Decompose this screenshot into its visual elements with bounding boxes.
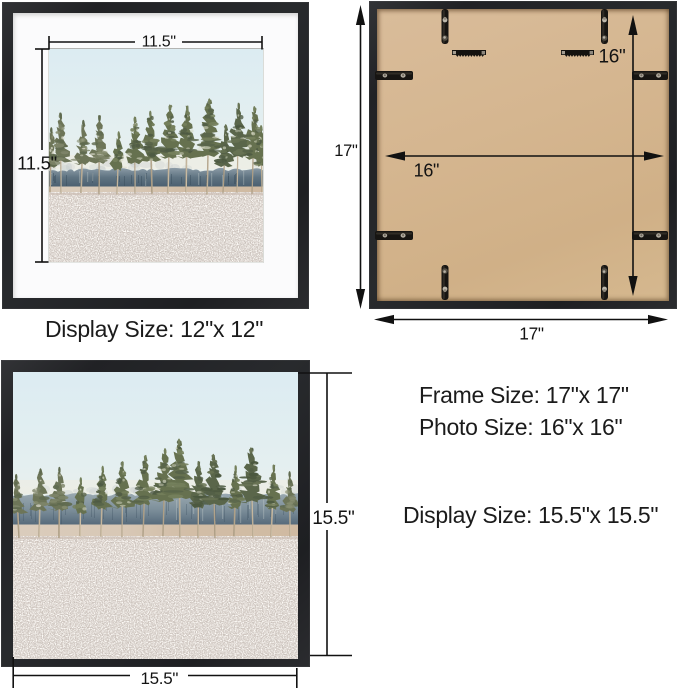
svg-text:11.5": 11.5"	[17, 152, 57, 173]
svg-text:15.5": 15.5"	[312, 508, 354, 529]
svg-text:11.5": 11.5"	[142, 33, 176, 50]
svg-text:15.5": 15.5"	[140, 669, 178, 688]
svg-text:17": 17"	[334, 142, 358, 160]
svg-text:17": 17"	[519, 323, 544, 343]
svg-text:16": 16"	[414, 160, 440, 180]
svg-text:16": 16"	[599, 47, 626, 68]
